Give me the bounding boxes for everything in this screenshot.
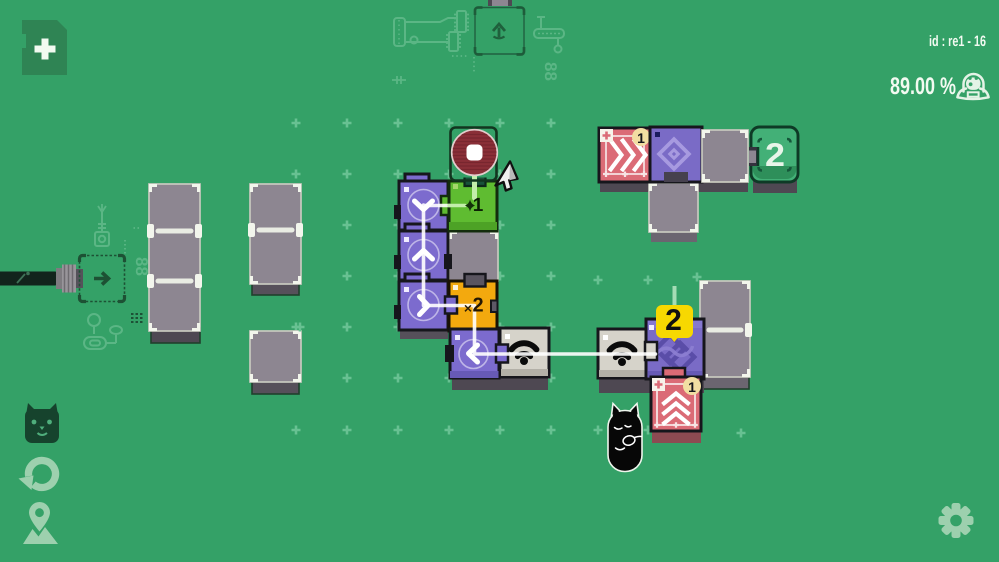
- svg-text:89.00 %: 89.00 %: [890, 73, 956, 100]
- svg-text:2: 2: [665, 304, 682, 337]
- svg-text:1: 1: [637, 130, 645, 146]
- svg-text:1: 1: [688, 379, 696, 395]
- svg-text:×: ×: [464, 300, 472, 316]
- svg-text:id : re1 - 16: id : re1 - 16: [929, 33, 986, 50]
- svg-text:2: 2: [765, 136, 785, 173]
- svg-text:88: 88: [541, 62, 560, 81]
- svg-text:1: 1: [473, 195, 484, 216]
- svg-text:2: 2: [472, 295, 483, 317]
- svg-text:88: 88: [132, 257, 151, 276]
